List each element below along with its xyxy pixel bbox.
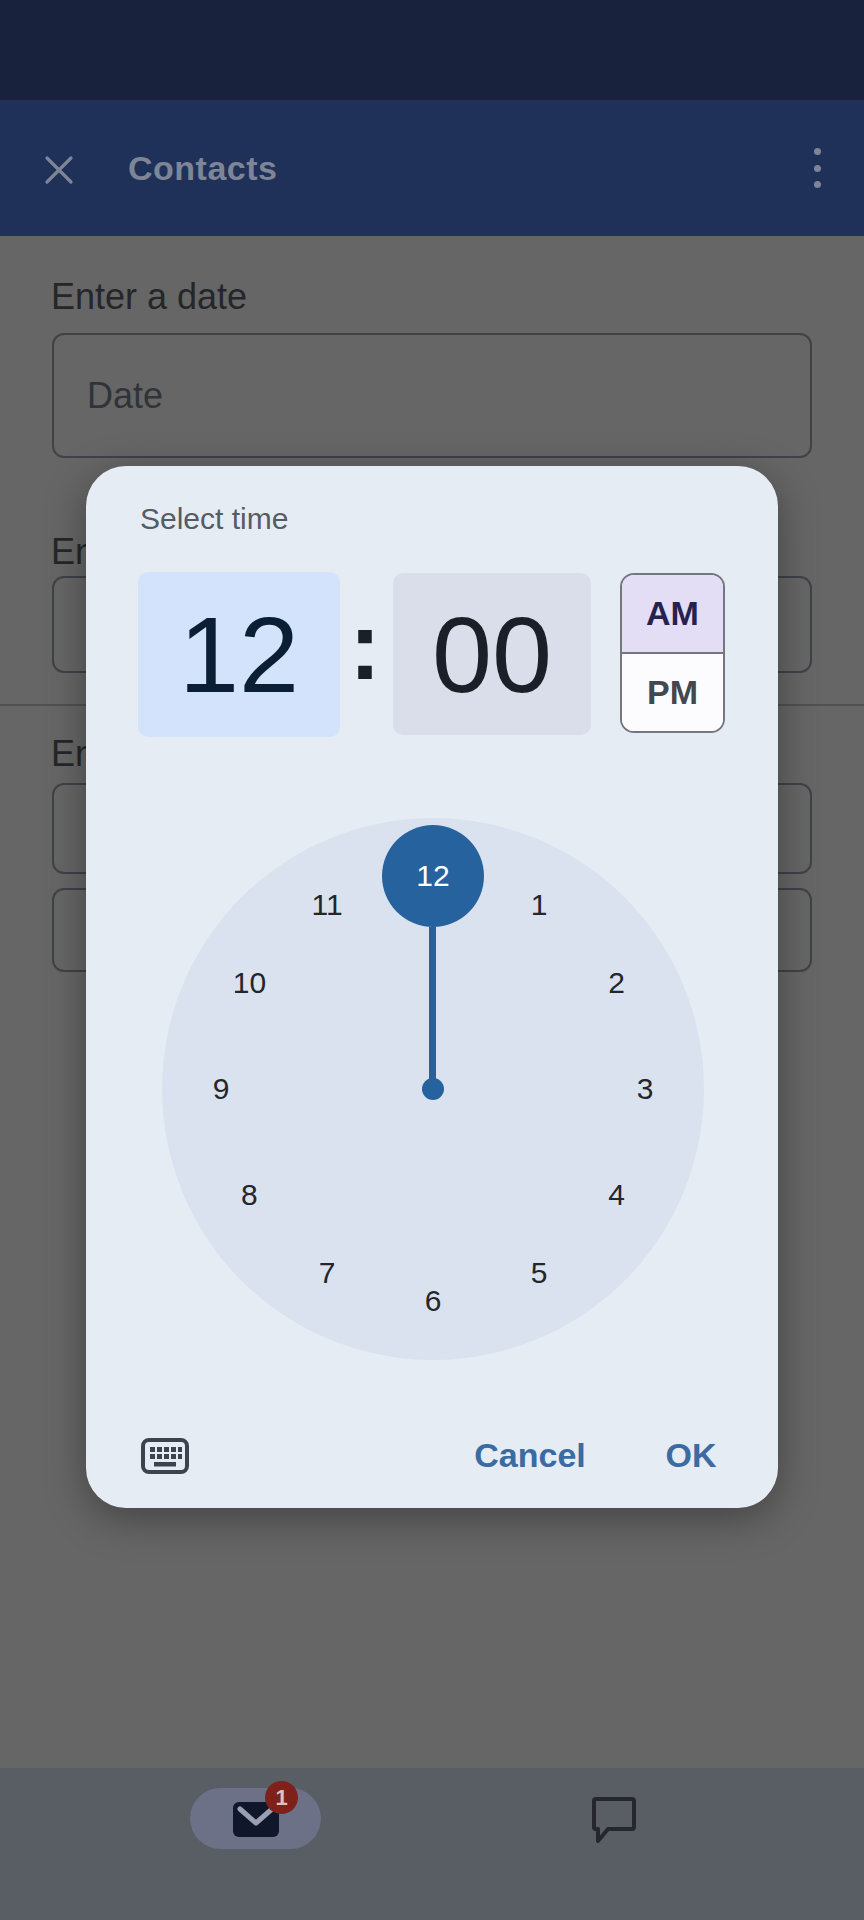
overflow-menu-button[interactable] (812, 148, 822, 188)
phone-screen: Contacts Enter a date Date En En 1 (0, 0, 864, 1920)
am-pm-toggle: AM PM (620, 573, 725, 733)
time-picker-dialog: Select time 12 : 00 AM PM 12123456789101… (86, 466, 778, 1508)
clock-number-10[interactable]: 10 (227, 961, 271, 1005)
close-icon (44, 155, 74, 185)
clock-number-1[interactable]: 1 (517, 883, 561, 927)
clock-number-11[interactable]: 11 (305, 883, 349, 927)
clock-number-4[interactable]: 4 (595, 1173, 639, 1217)
kebab-dot (814, 148, 821, 155)
kebab-dot (814, 181, 821, 188)
clock-hand (429, 927, 436, 1089)
clock-number-8[interactable]: 8 (227, 1173, 271, 1217)
keyboard-input-mode-button[interactable] (135, 1428, 195, 1484)
mail-badge: 1 (265, 1781, 298, 1814)
app-bar: Contacts (0, 100, 864, 236)
date-placeholder: Date (87, 335, 163, 456)
clock-number-5[interactable]: 5 (517, 1251, 561, 1295)
chat-icon (590, 1795, 642, 1849)
clock-number-6[interactable]: 6 (411, 1279, 455, 1323)
status-bar (0, 0, 864, 100)
am-option[interactable]: AM (622, 575, 723, 654)
cancel-button[interactable]: Cancel (460, 1426, 600, 1485)
date-field-label: Enter a date (51, 276, 247, 318)
ok-button[interactable]: OK (652, 1426, 731, 1485)
clock-center-dot (422, 1078, 444, 1100)
pm-option[interactable]: PM (622, 654, 723, 731)
kebab-dot (814, 165, 821, 172)
clock-number-3[interactable]: 3 (623, 1067, 667, 1111)
clock-selected-hour-handle[interactable]: 12 (382, 825, 484, 927)
hour-display[interactable]: 12 (138, 572, 340, 737)
clock-number-7[interactable]: 7 (305, 1251, 349, 1295)
close-button[interactable] (44, 155, 74, 185)
bottom-nav-bar: 1 (0, 1768, 864, 1920)
page-title: Contacts (128, 100, 277, 236)
time-colon: : (340, 565, 390, 727)
clock-number-2[interactable]: 2 (595, 961, 639, 1005)
minute-display[interactable]: 00 (393, 573, 591, 735)
keyboard-icon (141, 1438, 189, 1474)
date-input[interactable]: Date (52, 333, 812, 458)
clock-number-9[interactable]: 9 (199, 1067, 243, 1111)
dialog-title: Select time (140, 502, 288, 536)
chat-tab[interactable] (590, 1795, 642, 1853)
